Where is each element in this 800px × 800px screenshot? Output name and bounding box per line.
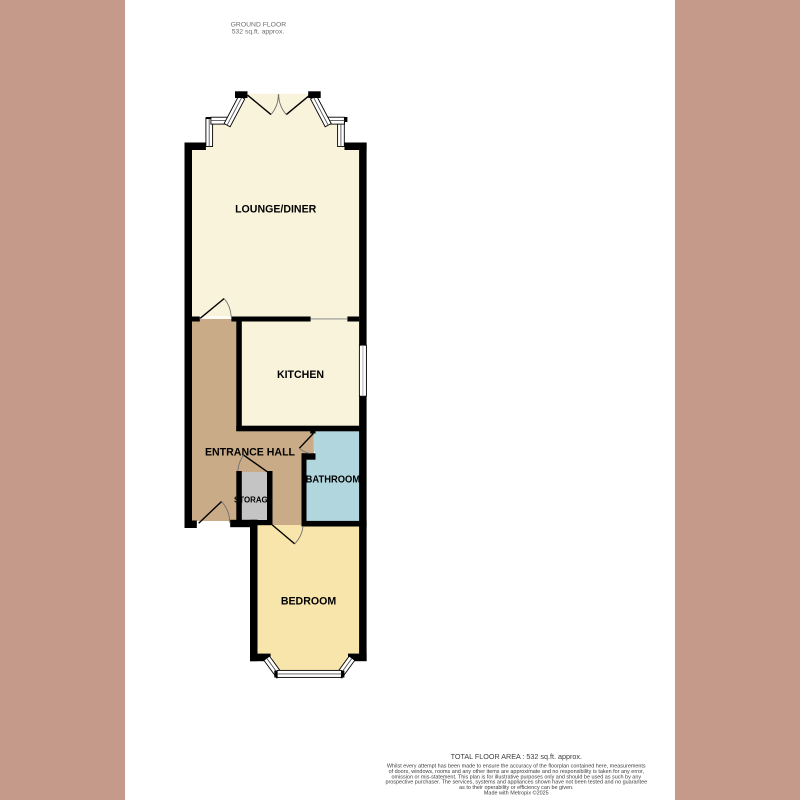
svg-text:BATHROOM: BATHROOM [306,474,361,485]
svg-text:GROUND FLOOR: GROUND FLOOR [231,22,287,29]
svg-text:TOTAL FLOOR AREA : 532 sq.ft.: TOTAL FLOOR AREA : 532 sq.ft. approx. [451,752,582,761]
svg-text:532 sq.ft. approx.: 532 sq.ft. approx. [232,29,285,36]
svg-text:LOUNGE/DINER: LOUNGE/DINER [235,203,317,215]
svg-text:KITCHEN: KITCHEN [277,369,324,381]
svg-text:BEDROOM: BEDROOM [281,596,336,608]
svg-text:ENTRANCE HALL: ENTRANCE HALL [205,446,296,458]
svg-text:Made with Metropix ©2025: Made with Metropix ©2025 [484,790,549,797]
